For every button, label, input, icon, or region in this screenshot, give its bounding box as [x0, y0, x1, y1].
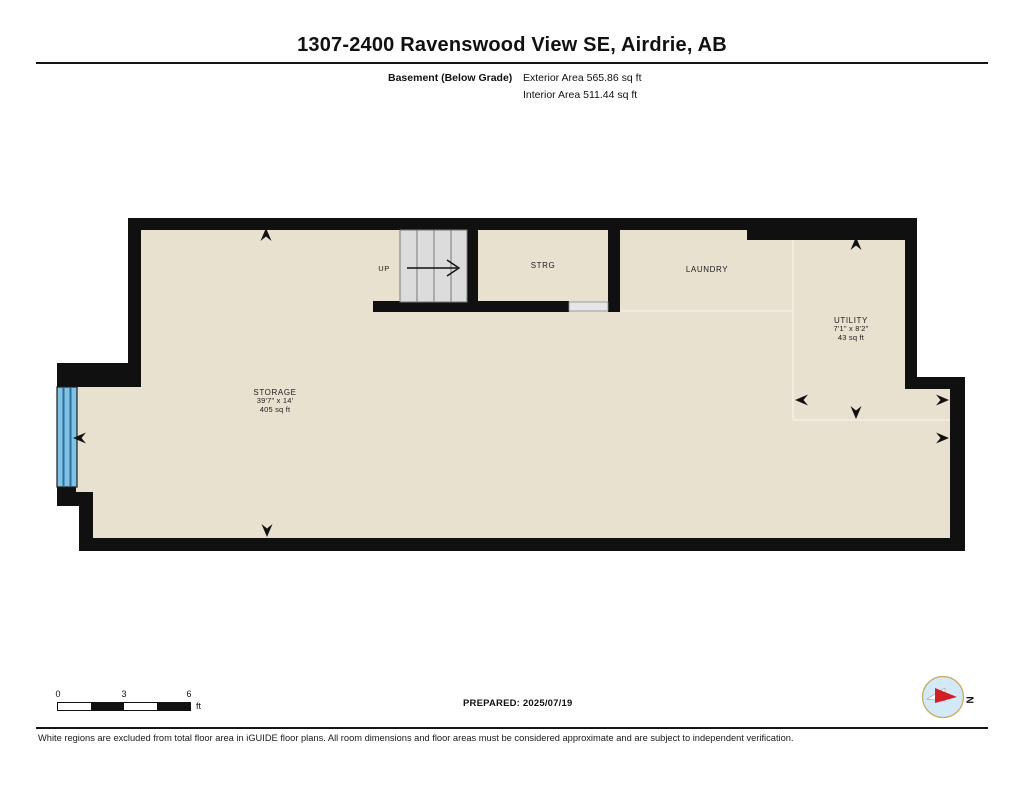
door-threshold	[569, 302, 608, 311]
floor-area	[76, 230, 950, 538]
strg-room-label: STRG	[531, 261, 556, 270]
footer-divider	[36, 727, 988, 729]
utility-room-label: UTILITY 7'1" x 8'2" 43 sq ft	[834, 316, 869, 342]
up-label: UP	[378, 264, 389, 273]
scale-bar-segment	[124, 703, 157, 710]
scale-tick-label: 6	[186, 689, 191, 699]
utility-room-area: 43 sq ft	[834, 334, 869, 343]
scale-bar-segment	[91, 703, 124, 710]
storage-room-label: STORAGE 39'7" x 14' 405 sq ft	[253, 388, 296, 414]
scale-unit-label: ft	[196, 701, 201, 711]
storage-room-area: 405 sq ft	[253, 406, 296, 415]
floor-plan-drawing	[0, 0, 1024, 791]
window-icon	[57, 387, 77, 487]
scale-bar-segment	[157, 703, 190, 710]
prepared-date-label: PREPARED: 2025/07/19	[463, 698, 572, 709]
floor-plan-page: 1307-2400 Ravenswood View SE, Airdrie, A…	[0, 0, 1024, 791]
laundry-room-label: LAUNDRY	[686, 265, 728, 274]
scale-bar-segment	[58, 703, 91, 710]
disclaimer-text: White regions are excluded from total fl…	[38, 733, 998, 743]
compass-north-label: N	[964, 696, 975, 703]
scale-bar	[57, 702, 191, 711]
scale-tick-label: 0	[55, 689, 60, 699]
scale-tick-label: 3	[121, 689, 126, 699]
compass-icon: N	[918, 672, 978, 722]
staircase	[400, 230, 467, 302]
